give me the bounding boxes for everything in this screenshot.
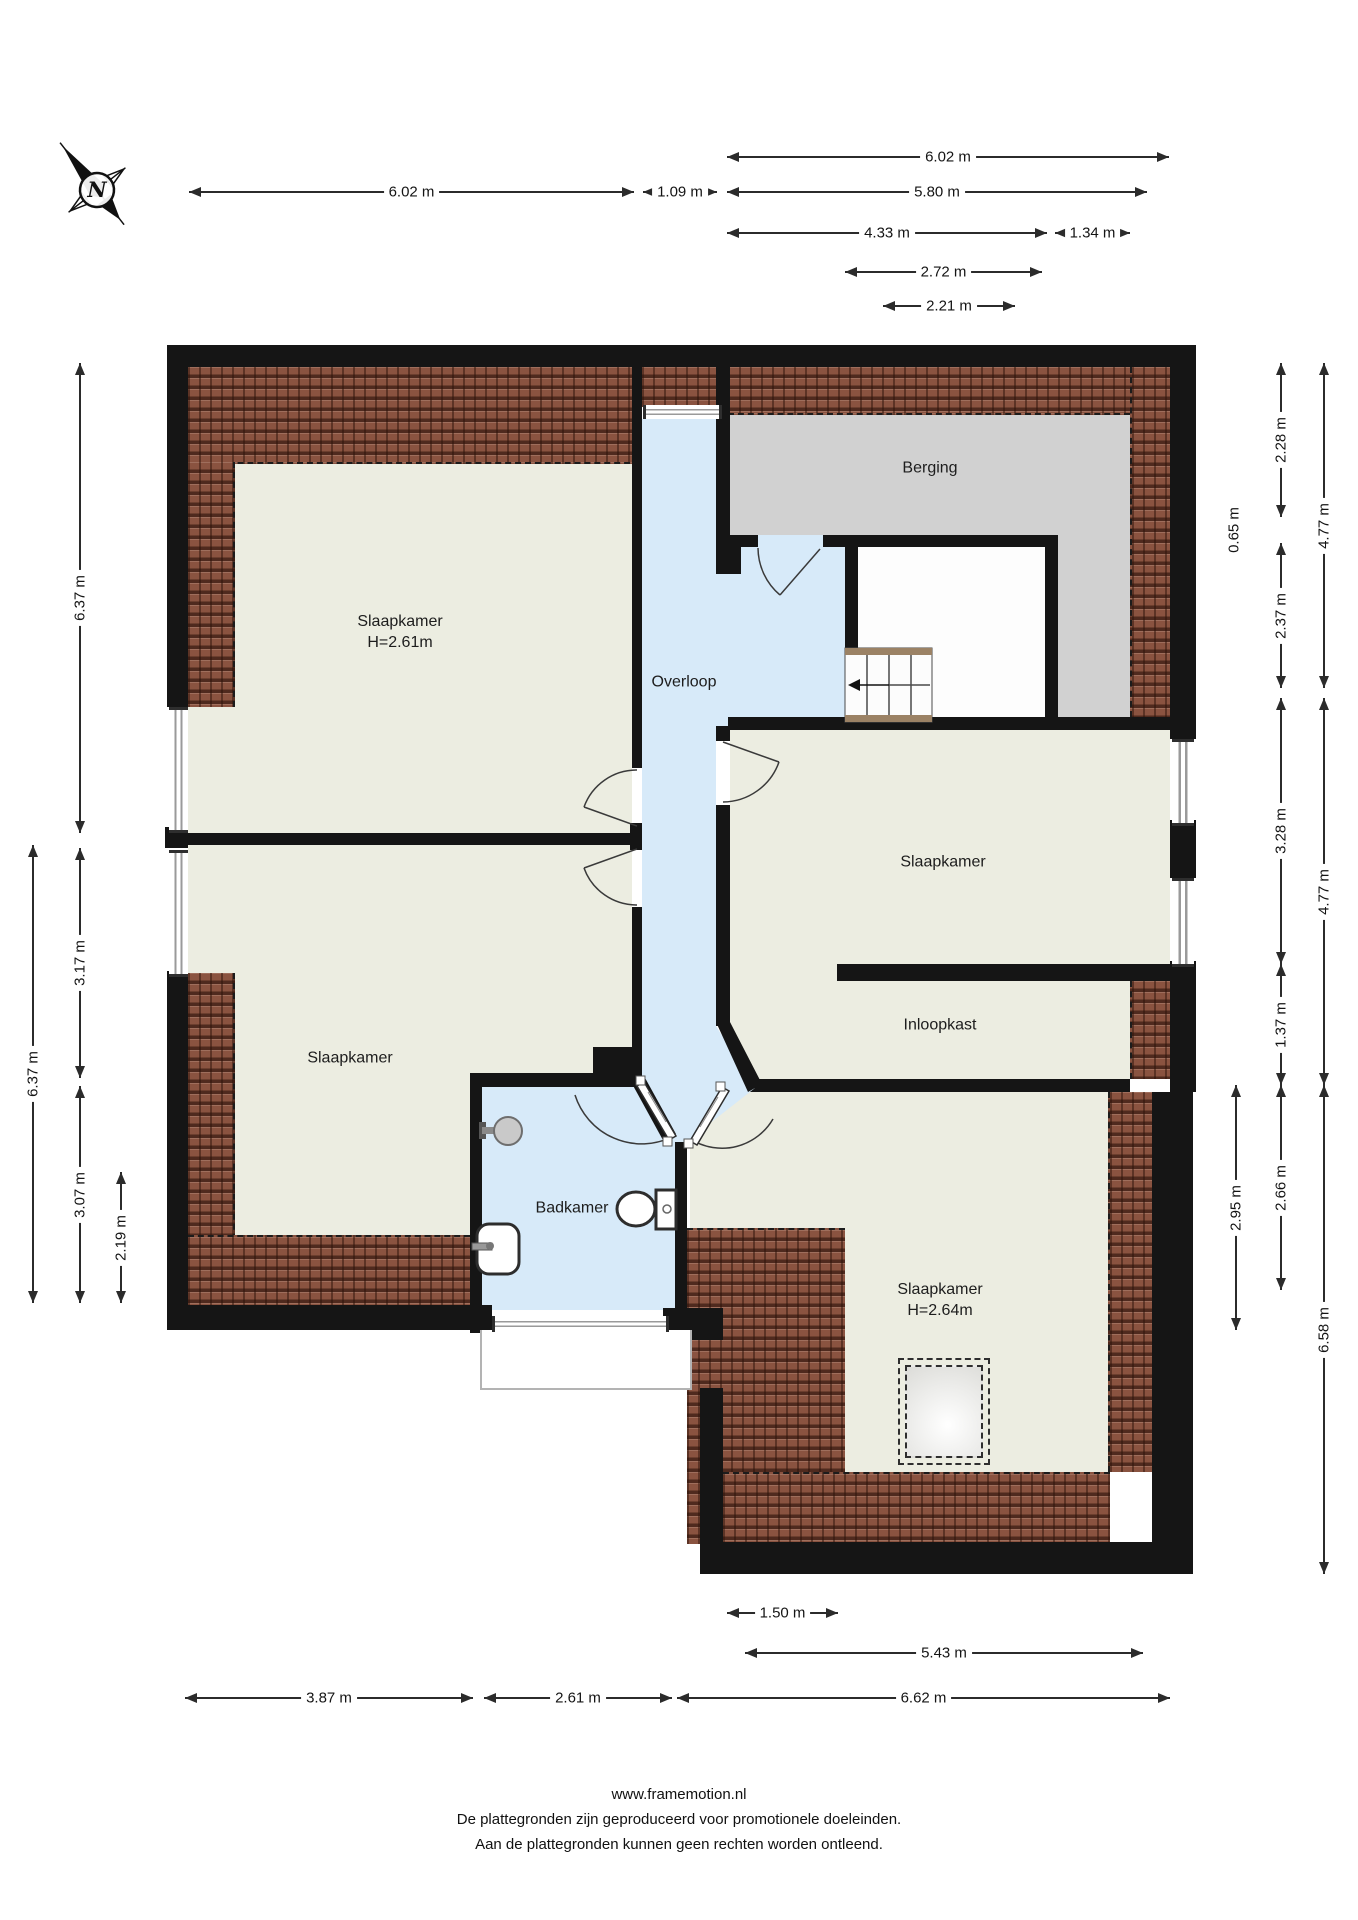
- window-left-1: [169, 707, 188, 833]
- room-name: Badkamer: [536, 1198, 609, 1219]
- dimension-bottom-662: 6.62 m: [677, 1697, 1170, 1699]
- dimension-right-658: 6.58 m: [1323, 1085, 1325, 1574]
- door-jamb: [684, 1139, 693, 1148]
- door-slaapkamer-bottom-left: [584, 849, 637, 905]
- dimension-left-219: 2.19 m: [120, 1172, 122, 1303]
- room-name: Slaapkamer: [357, 611, 442, 632]
- room-name: Inloopkast: [904, 1015, 977, 1036]
- room-label-slaapkamer-bottom-right: Slaapkamer H=2.64m: [897, 1279, 982, 1321]
- dimension-right-228: 2.28 m: [1280, 363, 1282, 517]
- room-name: Slaapkamer: [307, 1048, 392, 1069]
- room-label-slaapkamer-top-left: Slaapkamer H=2.61m: [357, 611, 442, 653]
- footer-url: www.framemotion.nl: [0, 1782, 1358, 1807]
- door-jamb: [636, 1076, 645, 1085]
- footer-disclaimer-1: De plattegronden zijn geproduceerd voor …: [0, 1807, 1358, 1832]
- room-name: Slaapkamer: [897, 1279, 982, 1300]
- dimension-right-137: 1.37 m: [1280, 964, 1282, 1085]
- dimension-right-477-upper: 4.77 m: [1323, 363, 1325, 688]
- dimension-bottom-261: 2.61 m: [484, 1697, 672, 1699]
- window-left-2: [169, 850, 188, 977]
- dimension-right-237: 2.37 m: [1280, 543, 1282, 688]
- door-jamb: [663, 1137, 672, 1146]
- room-name: Berging: [902, 458, 957, 479]
- room-name: Overloop: [652, 672, 717, 693]
- room-label-slaapkamer-bottom-left: Slaapkamer: [307, 1048, 392, 1069]
- dimension-bottom-543: 5.43 m: [745, 1652, 1143, 1654]
- dimension-right-295: 2.95 m: [1235, 1085, 1237, 1330]
- dimension-top-602-left: 6.02 m: [189, 191, 634, 193]
- compass-north-icon: N: [32, 121, 153, 247]
- dimension-right-266: 2.66 m: [1280, 1085, 1282, 1290]
- door-jamb: [716, 1082, 725, 1091]
- room-label-overloop: Overloop: [652, 672, 717, 693]
- dimension-top-272: 2.72 m: [845, 271, 1042, 273]
- window-corridor-top: [643, 405, 722, 419]
- room-height: H=2.64m: [897, 1300, 982, 1321]
- room-label-inloopkast: Inloopkast: [904, 1015, 977, 1036]
- plan-annotations: N: [0, 0, 1358, 1920]
- dimension-left-307: 3.07 m: [79, 1086, 81, 1303]
- dimension-bottom-150: 1.50 m: [727, 1612, 838, 1614]
- window-right-2: [1172, 878, 1194, 967]
- room-label-berging: Berging: [902, 458, 957, 479]
- dimension-left-637-outer: 6.37 m: [32, 845, 34, 1303]
- dimension-top-602-right: 6.02 m: [727, 156, 1169, 158]
- toilet-icon: [617, 1190, 676, 1229]
- door-berging: [758, 548, 820, 595]
- floorplan-page: { "title": "Floor plan (verdieping)", "c…: [0, 0, 1358, 1920]
- dimension-bottom-387: 3.87 m: [185, 1697, 473, 1699]
- dimension-left-317: 3.17 m: [79, 848, 81, 1078]
- door-slaapkamer-right: [723, 742, 779, 802]
- dimension-right-477-lower: 4.77 m: [1323, 698, 1325, 1085]
- footer: www.framemotion.nl De plattegronden zijn…: [0, 1782, 1358, 1857]
- room-label-badkamer: Badkamer: [536, 1198, 609, 1219]
- dimension-top-134: 1.34 m: [1055, 232, 1130, 234]
- room-label-slaapkamer-right: Slaapkamer: [900, 852, 985, 873]
- dimension-top-109: 1.09 m: [643, 191, 717, 193]
- dimension-top-580: 5.80 m: [727, 191, 1147, 193]
- window-right-1: [1172, 739, 1194, 826]
- door-slaapkamer-top-left: [584, 770, 637, 826]
- dimension-left-637-upper: 6.37 m: [79, 363, 81, 833]
- dimension-top-433: 4.33 m: [727, 232, 1047, 234]
- room-name: Slaapkamer: [900, 852, 985, 873]
- stairs: [845, 648, 932, 722]
- svg-text:N: N: [86, 177, 107, 202]
- shower-icon: [479, 1117, 522, 1145]
- sink-icon: [472, 1224, 519, 1274]
- dimension-top-221: 2.21 m: [883, 305, 1015, 307]
- footer-disclaimer-2: Aan de plattegronden kunnen geen rechten…: [0, 1832, 1358, 1857]
- window-badkamer-dormer: [492, 1316, 669, 1332]
- room-height: H=2.61m: [357, 632, 442, 653]
- dimension-right-328: 3.28 m: [1280, 698, 1282, 964]
